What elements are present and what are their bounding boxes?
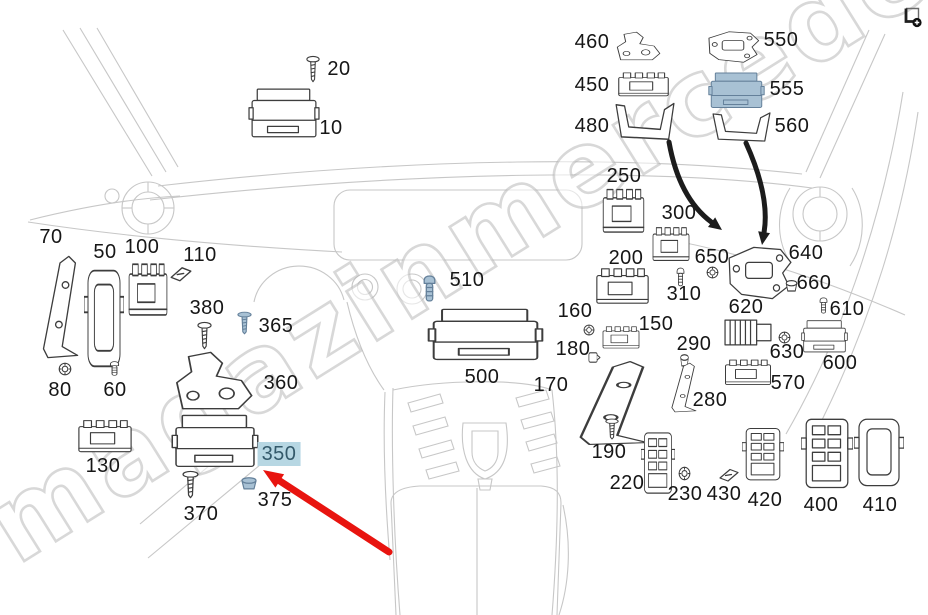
part-400-drawing <box>801 416 853 493</box>
part-610-number: 610 <box>830 298 865 320</box>
part-650-number: 650 <box>695 246 730 268</box>
part-430-drawing <box>718 467 740 483</box>
part-130-drawing <box>76 418 134 456</box>
part-300-drawing <box>651 225 691 265</box>
part-420-number: 420 <box>748 489 783 511</box>
part-220-number: 220 <box>610 472 645 494</box>
part-480-number: 480 <box>575 115 610 137</box>
part-200-number: 200 <box>609 247 644 269</box>
part-20-drawing <box>306 55 320 83</box>
part-365-number: 365 <box>259 315 294 337</box>
part-20-number: 20 <box>327 58 350 80</box>
part-160-drawing <box>583 324 595 336</box>
part-110-number: 110 <box>183 244 216 266</box>
part-250-drawing <box>601 186 646 238</box>
part-180-number: 180 <box>556 338 591 360</box>
part-200-drawing <box>594 266 651 308</box>
part-70-number: 70 <box>39 226 62 248</box>
part-560-drawing <box>710 111 772 144</box>
part-630-number: 630 <box>770 341 805 363</box>
part-360-drawing <box>171 348 259 413</box>
part-620-number: 620 <box>729 296 764 318</box>
part-10-drawing <box>248 85 320 143</box>
part-130-number: 130 <box>86 455 121 477</box>
part-230-number: 230 <box>668 483 703 505</box>
part-370-number: 370 <box>184 503 219 525</box>
part-60-drawing <box>108 360 121 377</box>
part-430-number: 430 <box>707 483 742 505</box>
part-50-drawing <box>84 266 124 374</box>
part-360-number: 360 <box>264 372 299 394</box>
part-640-number: 640 <box>789 242 824 264</box>
part-560-number: 560 <box>775 115 810 137</box>
part-500-number: 500 <box>465 366 500 388</box>
part-80-number: 80 <box>48 379 71 401</box>
part-450-number: 450 <box>575 74 610 96</box>
part-600-drawing <box>801 318 848 356</box>
part-150-drawing <box>601 325 641 351</box>
part-510-number: 510 <box>450 269 485 291</box>
part-250-number: 250 <box>607 165 642 187</box>
part-570-drawing <box>723 358 773 388</box>
part-610-drawing <box>818 296 829 315</box>
part-10-number: 10 <box>319 117 342 139</box>
part-70-drawing <box>38 252 82 362</box>
part-375-number: 375 <box>258 489 293 511</box>
part-365-drawing <box>237 311 252 335</box>
part-510-drawing <box>421 273 438 304</box>
part-410-number: 410 <box>863 494 898 516</box>
part-160-number: 160 <box>558 300 593 322</box>
part-310-number: 310 <box>667 283 702 305</box>
part-230-drawing <box>678 466 691 481</box>
part-410-drawing <box>854 416 904 491</box>
part-110-drawing <box>169 265 193 283</box>
part-570-number: 570 <box>771 372 806 394</box>
part-100-number: 100 <box>125 236 160 258</box>
part-300-number: 300 <box>662 202 697 224</box>
part-450-drawing <box>616 71 671 99</box>
enlarge-image-icon[interactable] <box>902 6 922 28</box>
part-190-drawing <box>605 418 619 440</box>
part-60-number: 60 <box>103 379 126 401</box>
part-555-number: 555 <box>770 78 805 100</box>
part-170-number: 170 <box>534 374 569 396</box>
part-290-number: 290 <box>677 333 712 355</box>
part-420-drawing <box>742 426 784 484</box>
part-400-number: 400 <box>804 494 839 516</box>
part-375-drawing <box>239 476 259 491</box>
part-370-drawing <box>182 470 199 499</box>
part-600-number: 600 <box>823 352 858 374</box>
part-460-number: 460 <box>575 31 610 53</box>
part-500-drawing <box>427 305 544 366</box>
part-620-drawing <box>723 316 774 349</box>
part-480-drawing <box>613 101 676 143</box>
part-555-drawing <box>708 70 765 112</box>
part-660-number: 660 <box>797 272 832 294</box>
part-100-drawing <box>127 260 169 322</box>
part-190-number: 190 <box>592 441 627 463</box>
part-50-number: 50 <box>93 241 116 263</box>
part-150-number: 150 <box>639 313 674 335</box>
part-280-number: 280 <box>693 389 728 411</box>
part-350-drawing <box>171 411 259 473</box>
part-380-number: 380 <box>190 297 225 319</box>
parts-diagram-canvas: magazinmercedes.ru 102046055045055548056… <box>0 0 928 615</box>
parts-layer: 1020460550450555480560250300705010011080… <box>0 0 928 615</box>
part-550-number: 550 <box>764 29 799 51</box>
part-350-number[interactable]: 350 <box>258 442 301 466</box>
part-80-drawing <box>58 362 72 376</box>
part-460-drawing <box>614 30 664 62</box>
part-380-drawing <box>197 321 212 350</box>
part-550-drawing <box>704 28 762 66</box>
